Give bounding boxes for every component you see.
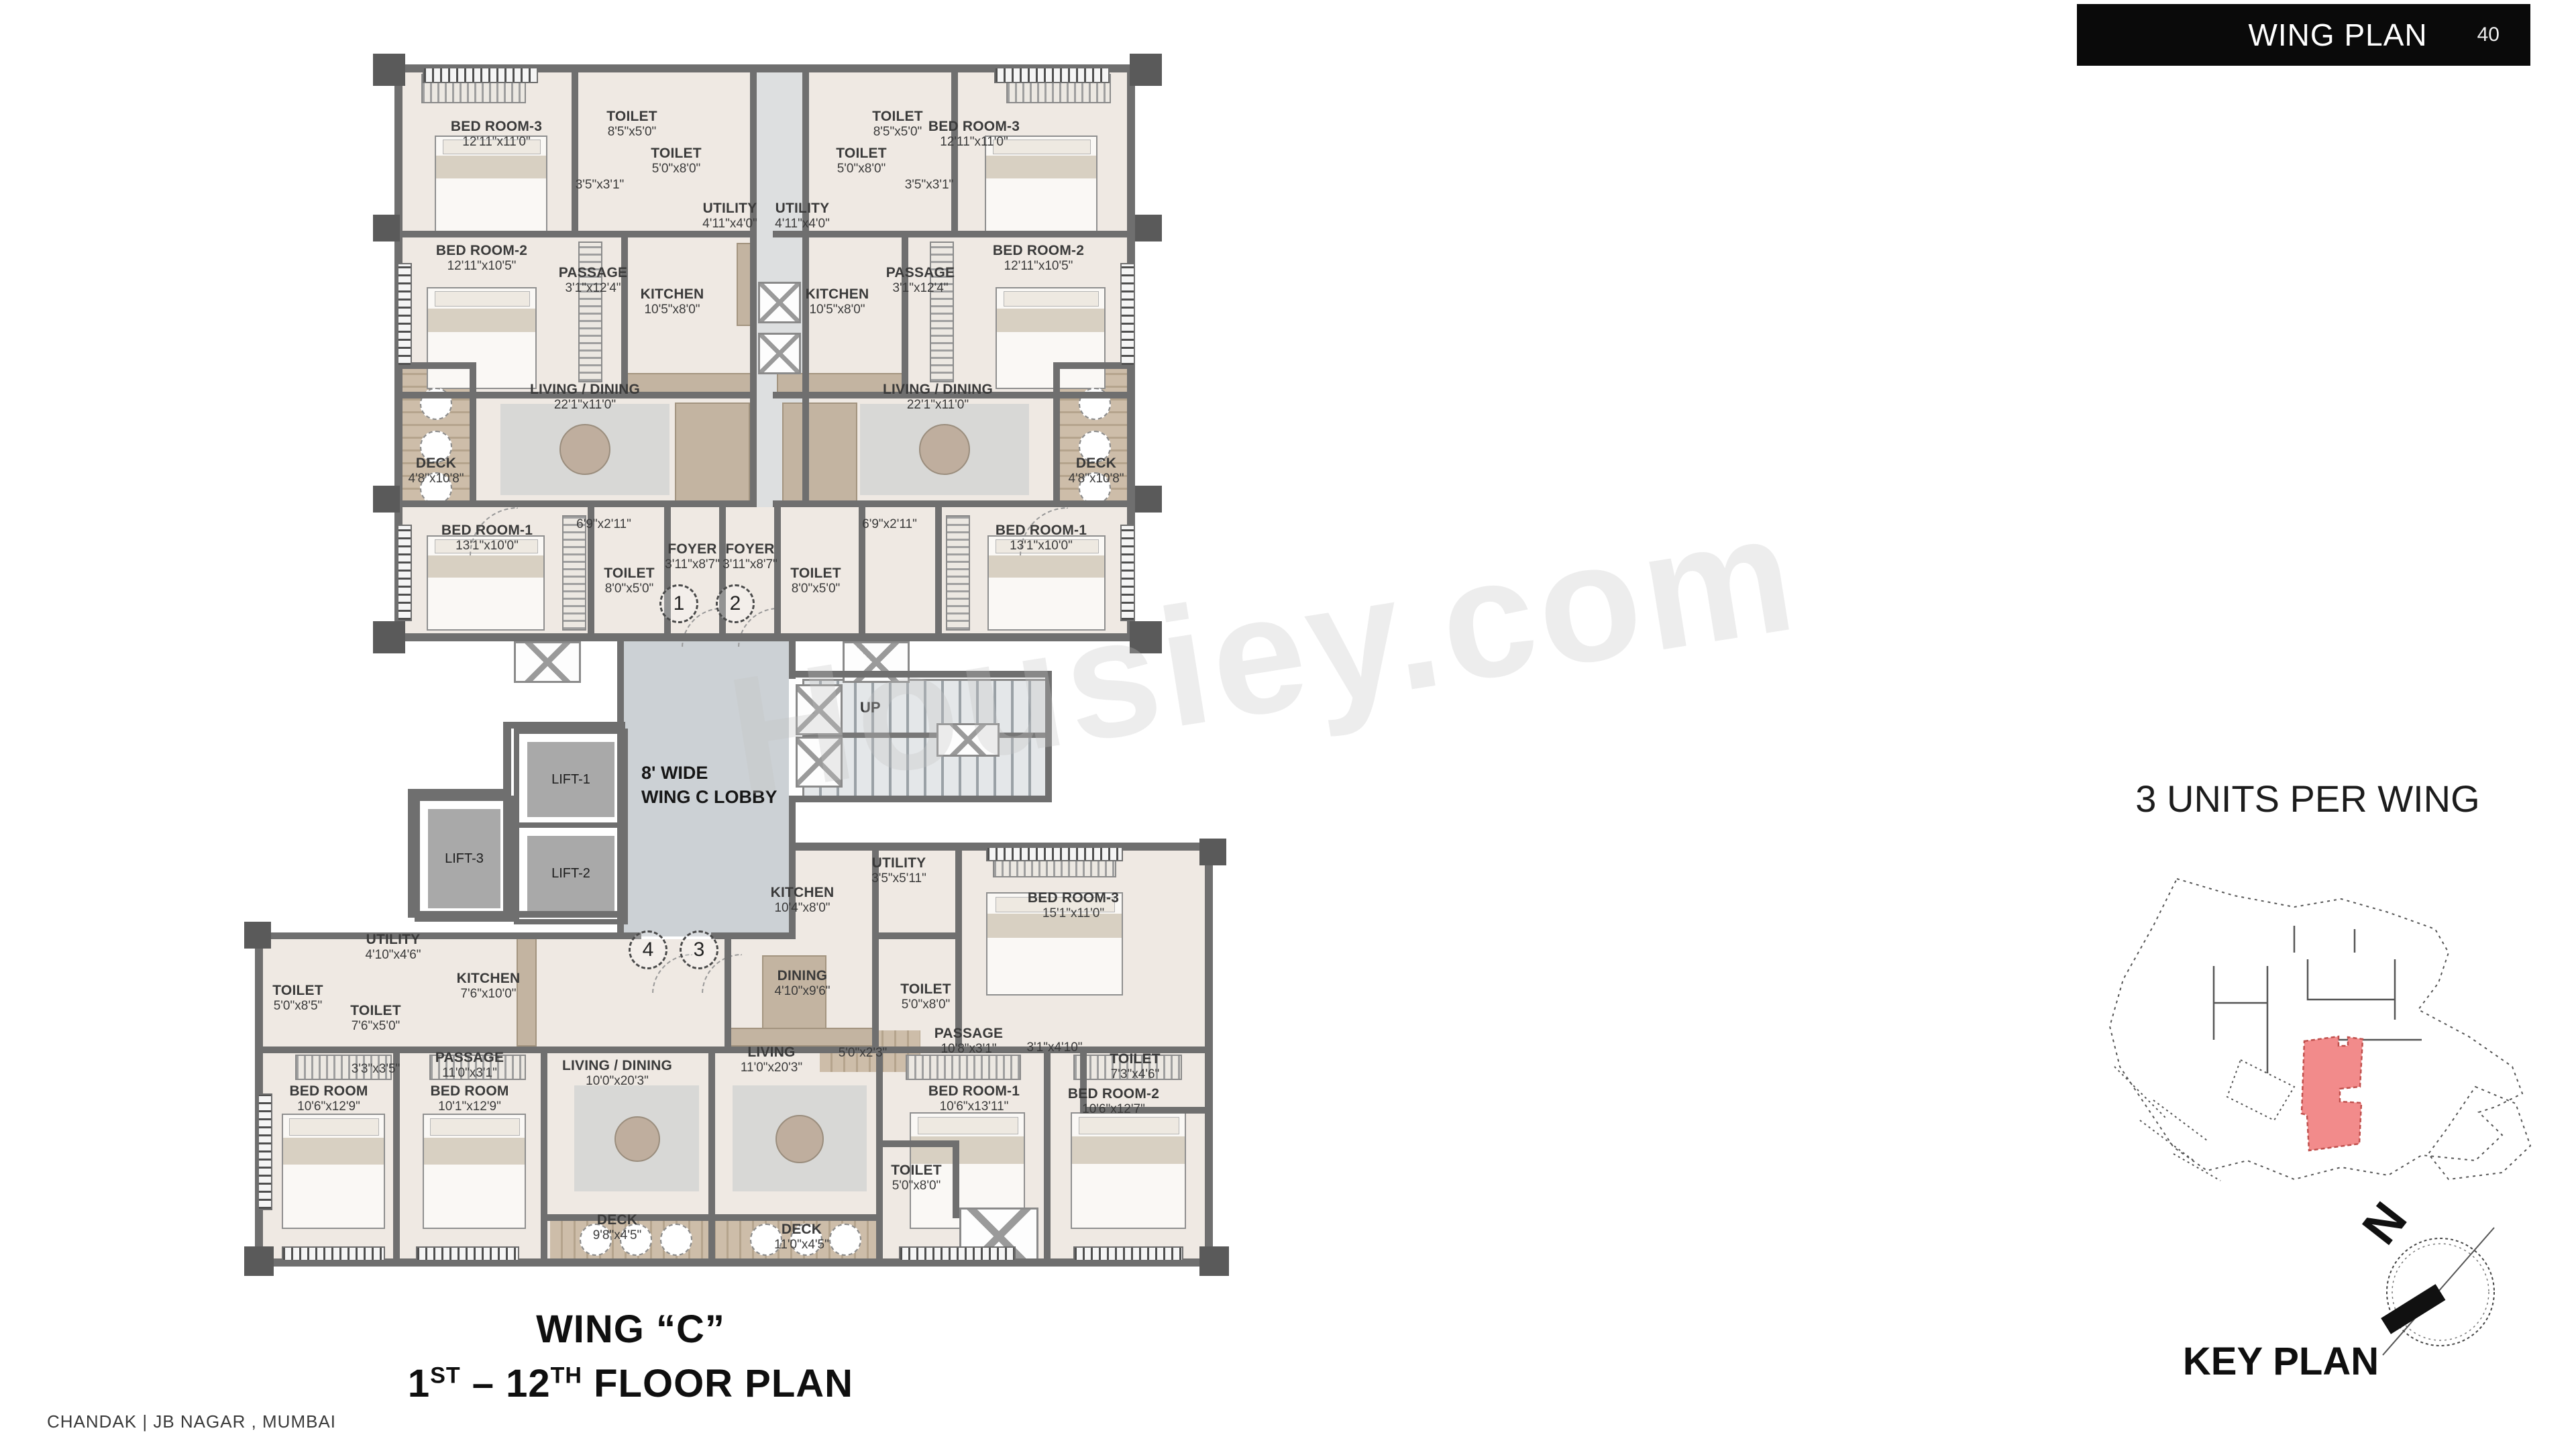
svg-text:N: N: [2351, 1192, 2417, 1254]
room-label: BED ROOM-212'11"x10'5": [436, 243, 527, 274]
room-label: PASSAGE3'1"x12'4": [886, 265, 955, 296]
room-label: 3'5"x3'1": [905, 178, 954, 193]
column: [1130, 54, 1162, 86]
room-label: TOILET8'0"x5'0": [604, 566, 654, 596]
room-label: LIVING11'0"x20'3": [741, 1044, 802, 1075]
deck-chair: [829, 1224, 861, 1256]
wall: [876, 1140, 959, 1147]
room-label: LIVING / DINING22'1"x11'0": [883, 382, 993, 413]
wall: [572, 64, 578, 237]
service-shaft: [796, 684, 843, 735]
room-label: UTILITY4'11"x4'0": [702, 201, 757, 231]
wall: [1044, 1046, 1051, 1265]
column: [373, 486, 400, 513]
wall: [796, 796, 1052, 802]
column: [373, 54, 405, 86]
window: [416, 1246, 519, 1261]
wall: [503, 911, 625, 918]
units-per-wing-note: 3 UNITS PER WING: [2073, 777, 2542, 820]
column: [373, 621, 405, 653]
wall: [951, 64, 958, 237]
wall: [953, 1140, 959, 1218]
window: [986, 847, 1123, 861]
wall: [955, 843, 962, 1053]
column: [1199, 1246, 1229, 1276]
column: [244, 1246, 274, 1276]
column: [1135, 215, 1162, 241]
room-label: TOILET8'0"x5'0": [790, 566, 841, 596]
room-label: KITCHEN10'5"x8'0": [806, 286, 869, 317]
window: [1120, 263, 1135, 366]
room-label: KITCHEN10'5"x8'0": [641, 286, 704, 317]
room-label: 3'3"x3'5": [352, 1062, 400, 1077]
column: [373, 215, 400, 241]
bed: [1071, 1112, 1186, 1229]
lift-1: LIFT-1: [514, 729, 628, 830]
wall: [935, 507, 942, 640]
room-label: DINING4'10"x9'6": [774, 968, 830, 999]
wall: [802, 64, 809, 507]
room-label: LIVING / DINING10'0"x20'3": [562, 1058, 672, 1089]
entry-door-2: 2: [716, 584, 755, 623]
wall: [773, 231, 958, 237]
column: [1135, 486, 1162, 513]
wardrobe: [906, 1055, 1021, 1080]
window: [1073, 1246, 1183, 1261]
wall: [541, 1046, 547, 1265]
room-label: BED ROOM-110'6"x13'11": [928, 1083, 1020, 1114]
wall: [503, 722, 511, 918]
counter-or-table: [675, 402, 750, 504]
room-label: BED ROOM-312'11"x11'0": [928, 119, 1020, 150]
room-label: 3'1"x4'10": [1026, 1040, 1082, 1055]
wall: [408, 789, 506, 796]
wall: [393, 1046, 400, 1265]
window: [994, 67, 1110, 83]
room-label: BED ROOM10'1"x12'9": [430, 1083, 508, 1114]
room-label: TOILET5'0"x8'0": [651, 146, 701, 176]
window: [1120, 525, 1135, 621]
room-label: UTILITY3'5"x5'11": [871, 855, 926, 886]
wardrobe: [930, 241, 954, 382]
room-label: BED ROOM10'6"x12'9": [289, 1083, 368, 1114]
room-label: LIVING / DINING22'1"x11'0": [530, 382, 640, 413]
wall: [394, 231, 577, 237]
room-label: UTILITY4'11"x4'0": [775, 201, 830, 231]
key-plan-title: KEY PLAN: [2140, 1339, 2422, 1384]
service-shaft: [758, 333, 801, 374]
wall: [789, 641, 796, 679]
service-shaft: [936, 723, 1000, 757]
room-label: TOILET5'0"x8'0": [836, 146, 886, 176]
wardrobe: [578, 241, 602, 382]
room-label: BED ROOM-113'1"x10'0": [441, 523, 533, 553]
deck-chair: [660, 1224, 692, 1256]
wardrobe: [562, 515, 586, 631]
service-shaft: [796, 737, 843, 788]
highlighted-wing: [2302, 1036, 2363, 1150]
room-label: BED ROOM-210'6"x12'7": [1068, 1086, 1159, 1117]
wing-title: WING “C”: [376, 1307, 885, 1352]
wall: [617, 641, 624, 939]
wall: [572, 231, 757, 237]
counter-or-table: [627, 373, 754, 393]
wall: [876, 1046, 883, 1265]
wall: [773, 500, 1135, 507]
wing-plan-sheet: { "header": { "title": "WING PLAN", "pag…: [0, 0, 2576, 1449]
project-footer: CHANDAK | JB NAGAR , MUMBAI: [47, 1411, 336, 1432]
room-label: TOILET8'5"x5'0": [872, 109, 922, 140]
service-shaft: [758, 282, 801, 323]
service-shaft: [514, 641, 581, 683]
lift-2: LIFT-2: [514, 822, 628, 924]
room-label: 6'9"x2'11": [576, 517, 631, 532]
wall: [711, 932, 796, 939]
wall: [750, 64, 757, 507]
room-label: FOYER3'11"x8'7": [665, 541, 720, 572]
wall: [789, 796, 796, 939]
column: [244, 922, 271, 949]
page-header: WING PLAN 40: [2077, 4, 2530, 66]
room-label: DECK9'8"x4'5": [593, 1212, 642, 1243]
coffee-table: [559, 424, 610, 475]
room-label: KITCHEN10'4"x8'0": [771, 885, 835, 916]
wall: [872, 932, 962, 939]
column: [1199, 839, 1226, 865]
window: [282, 1246, 385, 1261]
coffee-table: [614, 1116, 660, 1162]
room-label: BED ROOM-113'1"x10'0": [996, 523, 1087, 553]
lift-3: LIFT-3: [415, 796, 514, 922]
wardrobe: [946, 515, 970, 631]
room-label: DECK4'8"x10'8": [408, 455, 464, 486]
entry-door-4: 4: [629, 930, 667, 969]
entry-door-3: 3: [680, 930, 718, 969]
room-label: 6'9"x2'11": [862, 517, 917, 532]
wall: [708, 1046, 715, 1265]
bed: [423, 1114, 526, 1229]
window: [258, 1093, 272, 1210]
room-label: FOYER3'11"x8'7": [722, 541, 777, 572]
counter-or-table: [782, 402, 857, 504]
floor-range-title: 1ST – 12TH FLOOR PLAN: [376, 1361, 885, 1406]
wall: [408, 789, 416, 918]
wall: [394, 633, 1135, 641]
floor-plan: 8' WIDE WING C LOBBY UP LIFT-1 LIFT-2 LI…: [0, 0, 2576, 1449]
window: [423, 67, 538, 83]
wall: [470, 362, 476, 506]
lobby-label: 8' WIDE WING C LOBBY: [641, 761, 777, 810]
key-plan-map: [2073, 865, 2542, 1187]
room-label: BED ROOM-312'11"x11'0": [451, 119, 542, 150]
wall: [621, 237, 628, 398]
room-label: 5'0"x2'3": [839, 1046, 888, 1061]
room-label: PASSAGE11'0"x3'1": [435, 1050, 504, 1081]
room-label: KITCHEN7'6"x10'0": [457, 971, 521, 1002]
wall: [394, 500, 757, 507]
room-label: BED ROOM-315'1"x11'0": [1028, 890, 1119, 921]
room-label: TOILET5'0"x8'0": [900, 981, 951, 1012]
column: [1130, 621, 1162, 653]
room-label: PASSAGE3'1"x12'4": [559, 265, 628, 296]
room-label: TOILET8'5"x5'0": [606, 109, 657, 140]
room-label: UTILITY4'10"x4'6": [365, 932, 421, 963]
wall: [503, 722, 625, 729]
page-number: 40: [2477, 23, 2500, 46]
entry-door-1: 1: [659, 584, 698, 623]
window: [397, 263, 412, 366]
room-label: TOILET5'0"x8'5": [272, 983, 323, 1014]
room-label: BED ROOM-212'11"x10'5": [993, 243, 1084, 274]
wall: [774, 507, 781, 640]
wall: [724, 932, 731, 1053]
room-label: DECK4'8"x10'8": [1068, 455, 1124, 486]
bed: [427, 287, 537, 389]
wall: [1205, 843, 1213, 1267]
room-label: PASSAGE10'8"x3'1": [934, 1026, 1004, 1057]
stairs-up-label: UP: [860, 699, 881, 716]
bed: [996, 287, 1106, 389]
wall: [408, 911, 506, 918]
bed: [435, 136, 547, 233]
window: [397, 525, 412, 621]
room-label: TOILET7'3"x4'6": [1110, 1051, 1160, 1082]
wall: [510, 932, 641, 939]
wall: [1053, 362, 1060, 506]
window: [899, 1246, 1016, 1261]
wall: [953, 231, 1135, 237]
wall: [796, 671, 1052, 678]
room-label: TOILET7'6"x5'0": [350, 1003, 400, 1034]
wall: [1045, 671, 1052, 802]
coffee-table: [919, 424, 970, 475]
coffee-table: [775, 1115, 824, 1163]
counter-or-table: [729, 1028, 875, 1046]
bed: [282, 1114, 385, 1229]
room-label: TOILET5'0"x8'0": [891, 1163, 941, 1193]
bed: [985, 136, 1097, 233]
page-title: WING PLAN: [2248, 17, 2427, 53]
room-label: DECK11'0"x4'5": [774, 1222, 829, 1252]
plan-title: WING “C” 1ST – 12TH FLOOR PLAN: [376, 1307, 885, 1406]
wall: [902, 237, 908, 398]
room-label: 3'5"x3'1": [576, 178, 625, 193]
